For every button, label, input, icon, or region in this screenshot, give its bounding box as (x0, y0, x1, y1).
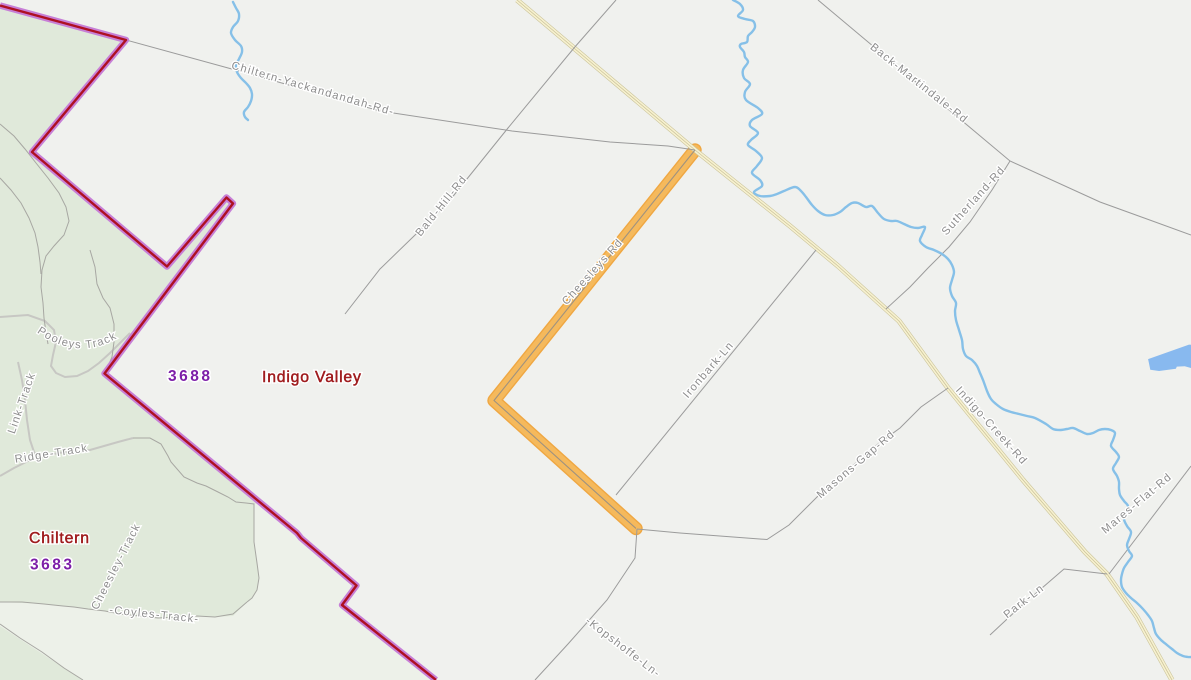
svg-text:3688: 3688 (168, 368, 212, 385)
svg-text:3683: 3683 (30, 557, 74, 574)
svg-text:Chiltern: Chiltern (29, 530, 90, 547)
svg-text:Indigo Valley: Indigo Valley (262, 369, 362, 386)
